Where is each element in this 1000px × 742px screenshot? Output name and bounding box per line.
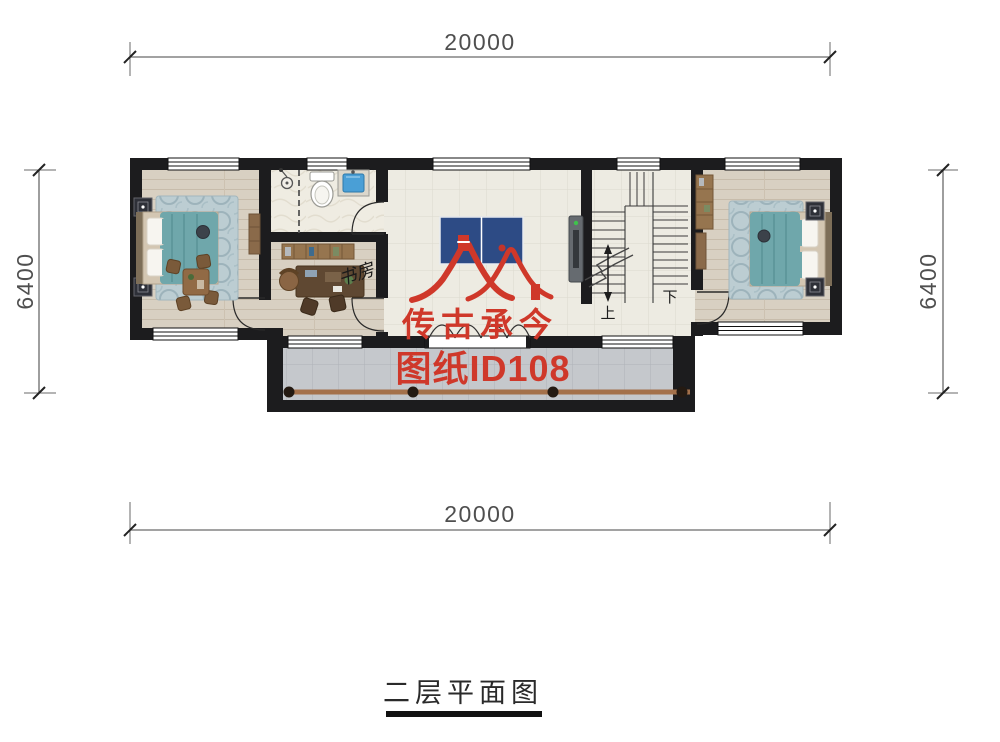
- dresser-icon: [696, 233, 706, 269]
- chair-icon: [329, 294, 347, 312]
- throw-pillow-icon: [197, 226, 210, 239]
- nightstand-icon: [806, 278, 824, 296]
- double-bed-icon: [750, 212, 832, 286]
- nightstand-icon: [806, 202, 824, 220]
- right-dimension-value: 6400: [915, 252, 941, 309]
- bottom-dimension: 20000: [124, 501, 836, 544]
- wall-balcony-parapet: [267, 400, 695, 412]
- floor-plan-canvas: 上 下: [0, 0, 1000, 742]
- watermark-sheet-id-text: 图纸ID108: [395, 348, 570, 389]
- wall-tv-icon: [569, 216, 583, 282]
- window-icon: [433, 158, 530, 170]
- right-dimension: 6400: [915, 164, 958, 399]
- office-chair-icon: [280, 270, 299, 291]
- window-icon: [725, 158, 800, 170]
- window-icon: [168, 158, 239, 170]
- window-icon: [718, 322, 803, 335]
- chair-icon: [166, 259, 181, 274]
- chair-icon: [176, 295, 192, 311]
- top-dimension: 20000: [124, 29, 836, 76]
- wardrobe-icon: [249, 214, 260, 254]
- watermark-brand-text: 传古承今: [401, 306, 558, 343]
- ping-pong-table-icon: [440, 217, 523, 264]
- page-title: 二层平面图: [383, 678, 543, 708]
- top-dimension-value: 20000: [444, 29, 515, 55]
- toilet-icon: [310, 172, 334, 207]
- window-icon: [307, 158, 347, 170]
- bookshelf-icon: [282, 244, 354, 259]
- wall-bath-game-upper: [376, 168, 388, 202]
- bottom-dimension-value: 20000: [444, 501, 515, 527]
- window-icon: [602, 336, 673, 348]
- left-dimension: 6400: [12, 164, 56, 399]
- wall-bottom-center-a: [283, 336, 288, 348]
- wardrobe-icon: [696, 175, 713, 229]
- stairs-down-label: 下: [662, 289, 677, 306]
- window-icon: [153, 328, 238, 340]
- wall-bath-game-mid: [376, 234, 388, 298]
- drawing-title: 二层平面图: [383, 678, 543, 717]
- wall-balcony-left: [267, 328, 283, 412]
- left-dimension-value: 6400: [12, 252, 38, 309]
- window-icon: [617, 158, 660, 170]
- floor-plan-drawing: 上 下: [0, 0, 1000, 742]
- window-icon: [288, 336, 362, 348]
- title-underline: [386, 711, 542, 717]
- sink-icon: [338, 170, 369, 196]
- stairs-up-label: 上: [600, 305, 615, 322]
- throw-pillow-icon: [758, 230, 770, 242]
- chair-icon: [196, 254, 211, 269]
